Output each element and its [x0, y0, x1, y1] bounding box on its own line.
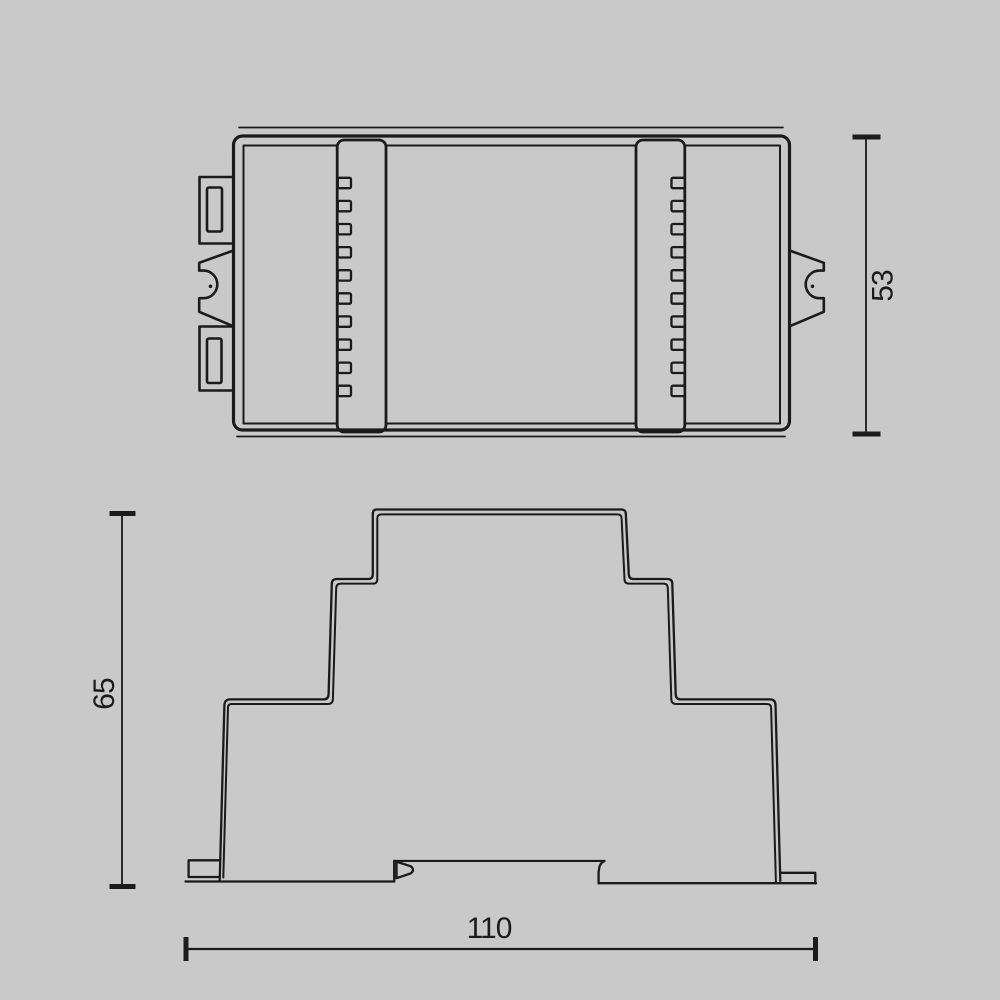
- din-rail-foot-left: [186, 860, 395, 881]
- profile-inner-contour: [223, 514, 776, 881]
- terminal-slot: [672, 363, 685, 373]
- terminal-slot: [672, 386, 685, 396]
- terminal-slot: [672, 224, 685, 234]
- terminal-slot: [338, 201, 351, 211]
- terminal-slot: [338, 293, 351, 303]
- dimension-label-depth: 53: [866, 270, 899, 302]
- terminal-slot: [672, 270, 685, 280]
- device-body-outline: [234, 136, 790, 430]
- din-rail-foot-right: [599, 873, 816, 883]
- terminal-slot: [338, 316, 351, 326]
- terminal-slot: [338, 247, 351, 257]
- mounting-lug-left: [199, 251, 233, 327]
- mounting-tab-top: [200, 177, 234, 244]
- terminal-slot: [338, 270, 351, 280]
- terminal-slot: [338, 178, 351, 188]
- terminal-slot: [338, 363, 351, 373]
- dimension-label-height: 65: [88, 678, 121, 710]
- terminal-slot: [338, 224, 351, 234]
- technical-drawing-canvas: 53 65 110: [0, 0, 1000, 1000]
- top-view: [199, 128, 824, 437]
- din-rail-slot-step: [599, 861, 605, 883]
- dimension-height: 65: [88, 514, 136, 887]
- terminal-slot: [672, 247, 685, 257]
- terminal-slot: [672, 293, 685, 303]
- lug-hole-right: [811, 285, 815, 289]
- terminal-slot: [672, 178, 685, 188]
- din-rail-claw: [394, 861, 413, 882]
- dimension-label-width: 110: [467, 912, 512, 945]
- terminal-slot: [672, 316, 685, 326]
- dimension-depth: 53: [853, 137, 900, 434]
- terminal-slot: [672, 201, 685, 211]
- drawing-svg: 53 65 110: [0, 0, 1000, 1000]
- profile-outer-contour: [220, 510, 781, 881]
- terminal-slot: [338, 386, 351, 396]
- lug-hole-left: [209, 285, 213, 289]
- dimension-width: 110: [186, 912, 816, 961]
- terminal-slot: [672, 340, 685, 350]
- side-profile-view: [186, 510, 817, 884]
- inner-panel-outline: [244, 146, 781, 424]
- mounting-lug-right: [790, 251, 824, 327]
- terminal-slot: [338, 340, 351, 350]
- mounting-tab-bottom: [200, 327, 234, 391]
